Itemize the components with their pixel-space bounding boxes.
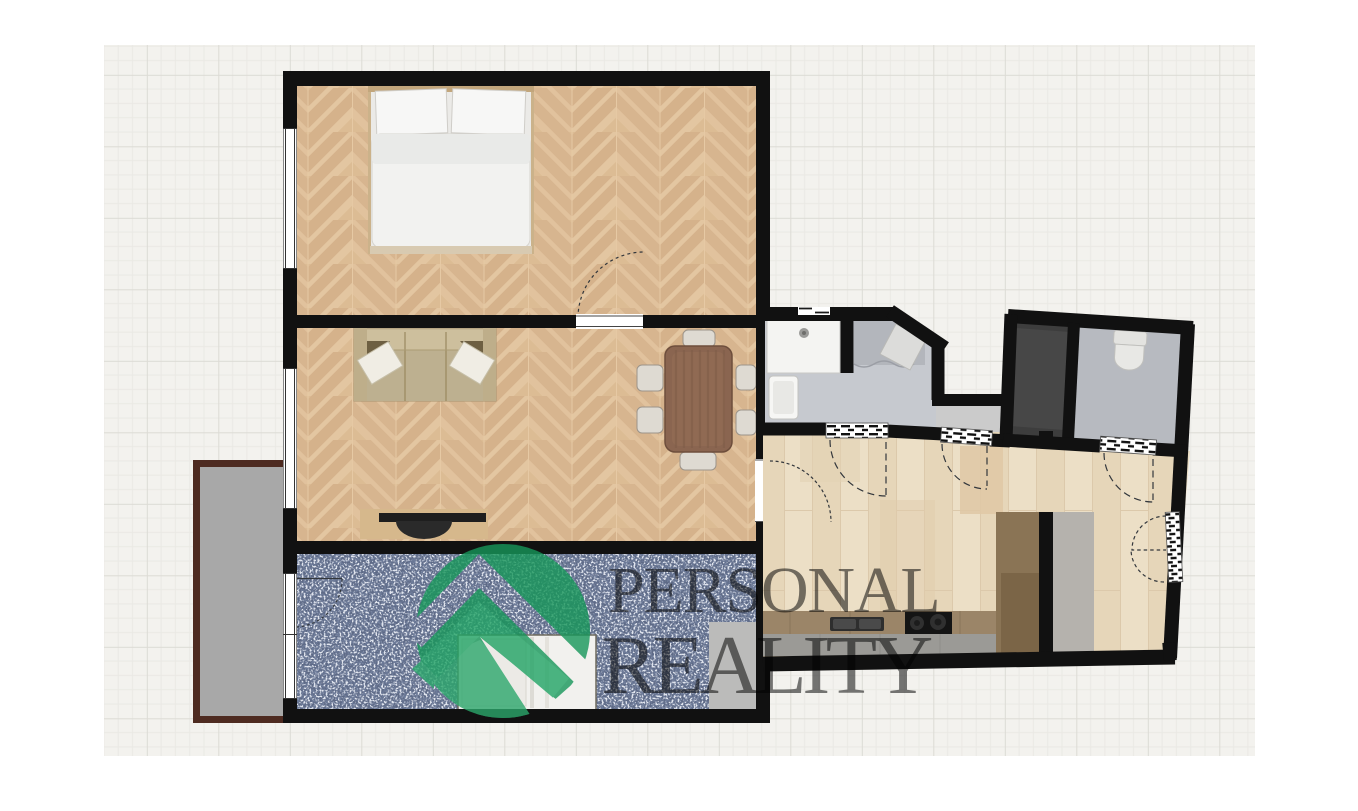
svg-text:REALITY: REALITY — [601, 619, 932, 712]
svg-text:PERSONAL: PERSONAL — [608, 554, 939, 627]
